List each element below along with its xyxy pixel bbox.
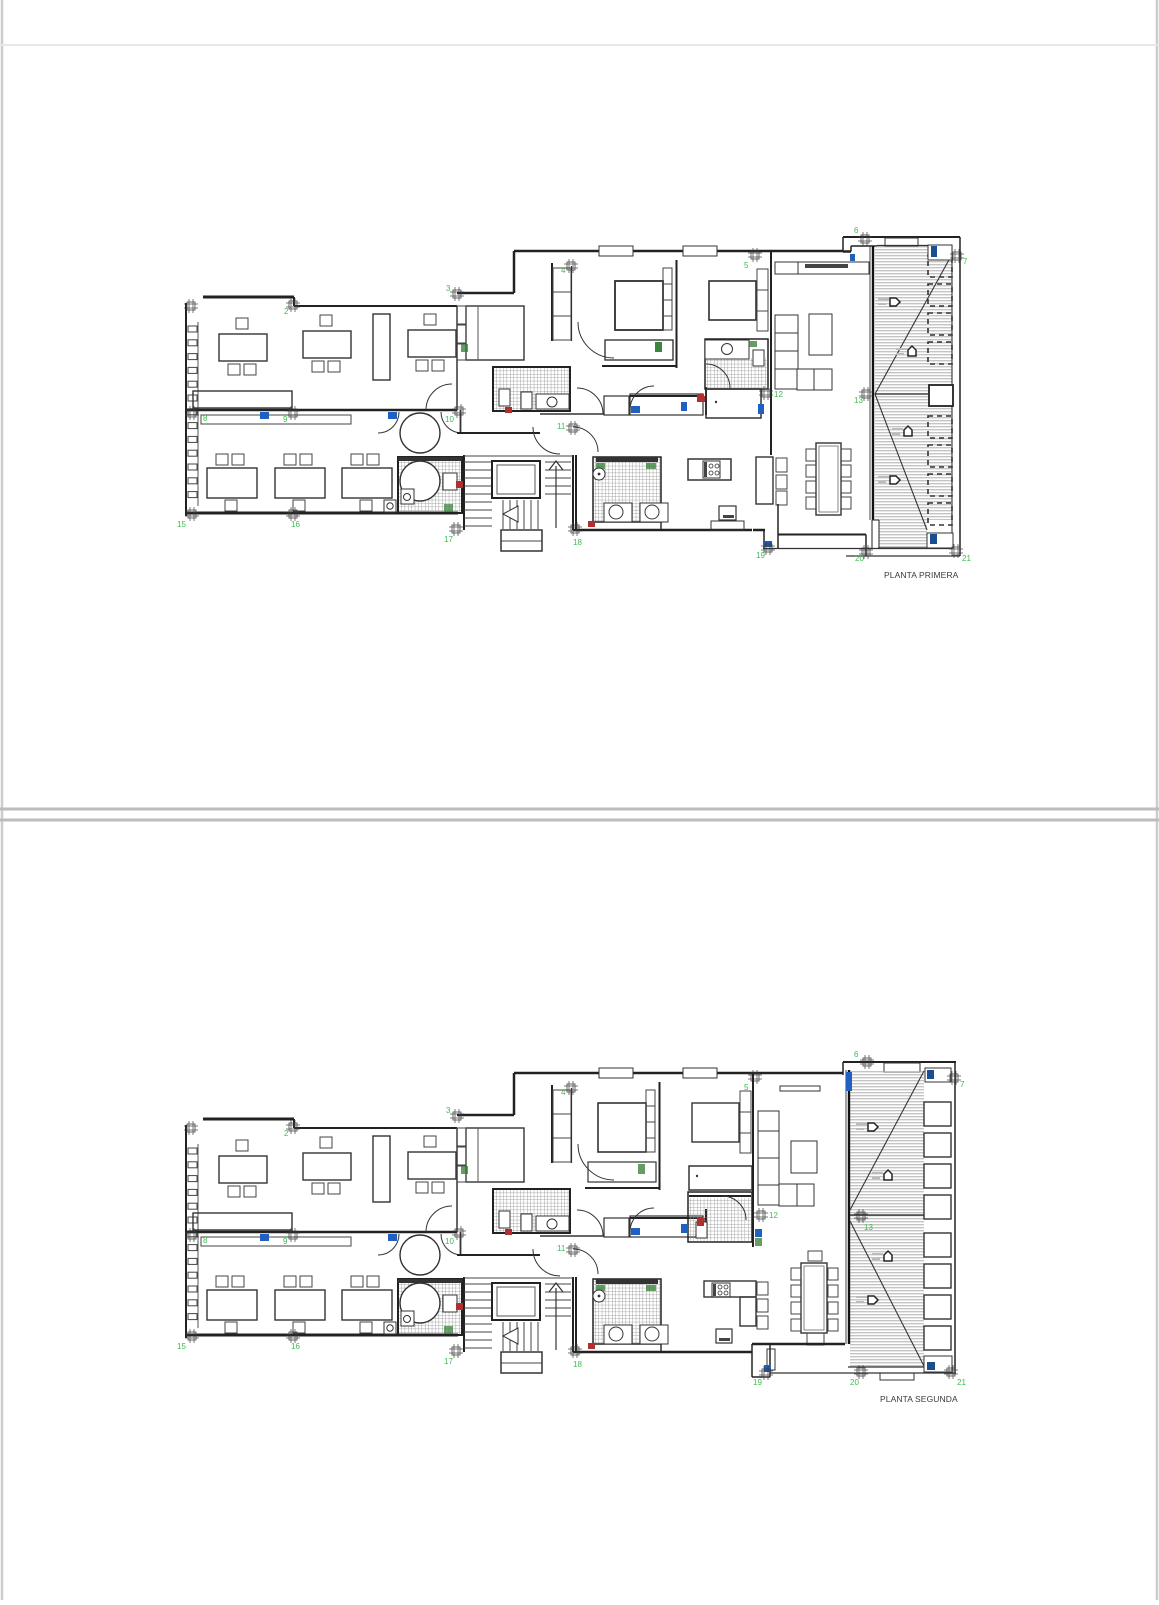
svg-text:11: 11	[557, 422, 566, 431]
svg-text:20: 20	[850, 1378, 859, 1387]
svg-text:2: 2	[284, 307, 289, 316]
svg-text:13: 13	[854, 396, 863, 405]
svg-text:15: 15	[177, 520, 186, 529]
svg-text:6: 6	[854, 226, 859, 235]
svg-text:10: 10	[445, 415, 454, 424]
svg-text:3: 3	[446, 284, 451, 293]
svg-text:19: 19	[756, 551, 765, 560]
svg-text:13: 13	[864, 1223, 873, 1232]
svg-text:16: 16	[291, 520, 300, 529]
svg-text:5: 5	[744, 261, 749, 270]
svg-text:6: 6	[854, 1050, 859, 1059]
svg-text:4: 4	[561, 266, 566, 275]
svg-text:PLANTA SEGUNDA: PLANTA SEGUNDA	[880, 1394, 958, 1404]
svg-text:18: 18	[573, 538, 582, 547]
svg-text:20: 20	[855, 554, 864, 563]
svg-text:17: 17	[444, 535, 453, 544]
svg-text:21: 21	[957, 1378, 966, 1387]
svg-text:8: 8	[203, 414, 208, 423]
svg-text:12: 12	[769, 1211, 778, 1220]
svg-text:12: 12	[774, 390, 783, 399]
svg-text:21: 21	[962, 554, 971, 563]
svg-text:7: 7	[960, 1080, 965, 1089]
svg-text:19: 19	[753, 1378, 762, 1387]
svg-text:PLANTA PRIMERA: PLANTA PRIMERA	[884, 570, 959, 580]
svg-text:9: 9	[283, 415, 288, 424]
svg-text:7: 7	[963, 257, 968, 266]
